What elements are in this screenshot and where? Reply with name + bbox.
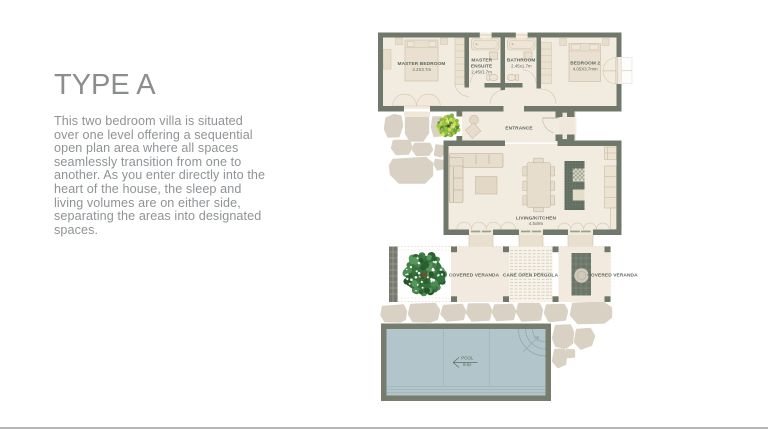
svg-text:MASTER: MASTER xyxy=(471,58,492,64)
svg-text:COVERED VERANDA: COVERED VERANDA xyxy=(449,272,500,278)
svg-text:4.05X3.7mm: 4.05X3.7mm xyxy=(573,66,598,71)
svg-text:CANE OPEN PERGOLA: CANE OPEN PERGOLA xyxy=(503,272,559,278)
svg-text:ENSUITE: ENSUITE xyxy=(471,64,493,70)
svg-text:4.5x9m: 4.5x9m xyxy=(529,221,544,226)
svg-text:POOL: POOL xyxy=(461,356,474,361)
svg-text:8.5x: 8.5x xyxy=(463,362,472,367)
svg-text:COVERED VERANDA: COVERED VERANDA xyxy=(587,272,638,278)
svg-text:4.2X3.7m: 4.2X3.7m xyxy=(412,67,431,72)
svg-text:ENTRANCE: ENTRANCE xyxy=(505,125,533,131)
svg-text:2.45x1.7m: 2.45x1.7m xyxy=(471,70,492,75)
svg-text:2.45x1.7m: 2.45x1.7m xyxy=(511,64,532,69)
